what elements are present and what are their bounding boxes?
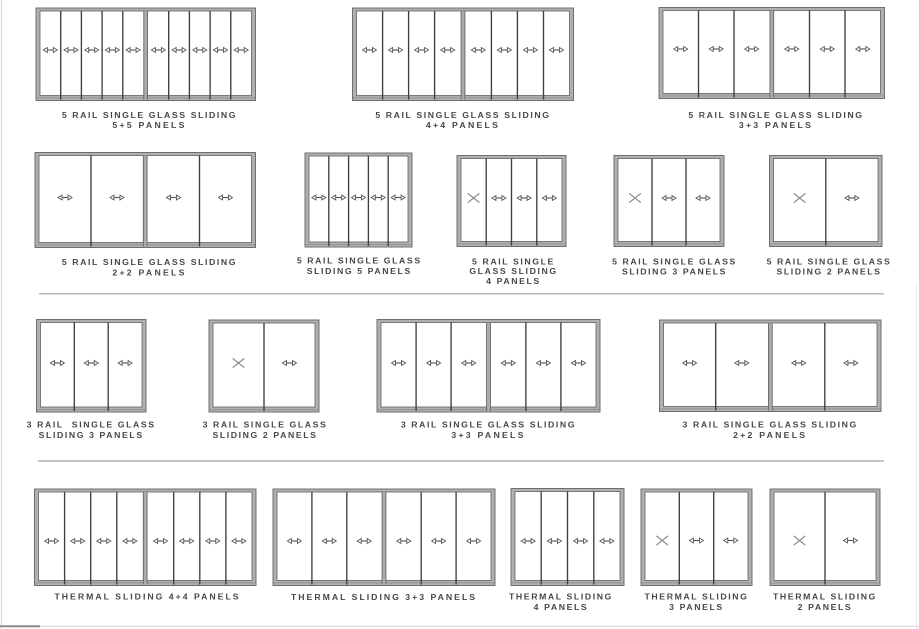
svg-text:5 RAIL SINGLE GLASS SLIDING: 5 RAIL SINGLE GLASS SLIDING	[62, 110, 237, 120]
svg-text:2 PANELS: 2 PANELS	[798, 602, 853, 612]
svg-text:GLASS SLIDING: GLASS SLIDING	[469, 266, 557, 276]
svg-text:SLIDING 2 PANELS: SLIDING 2 PANELS	[212, 430, 317, 440]
svg-text:3 RAIL SINGLE GLASS SLIDING: 3 RAIL SINGLE GLASS SLIDING	[401, 420, 576, 430]
svg-text:5 RAIL SINGLE GLASS: 5 RAIL SINGLE GLASS	[612, 256, 737, 266]
svg-text:3 RAIL SINGLE GLASS: 3 RAIL SINGLE GLASS	[27, 420, 156, 430]
svg-text:5 RAIL SINGLE: 5 RAIL SINGLE	[472, 256, 555, 266]
svg-text:5 RAIL SINGLE GLASS: 5 RAIL SINGLE GLASS	[297, 256, 422, 266]
svg-text:3 RAIL SINGLE GLASS: 3 RAIL SINGLE GLASS	[203, 420, 328, 430]
svg-text:SLIDING 2 PANELS: SLIDING 2 PANELS	[776, 267, 881, 277]
svg-text:5 RAIL SINGLE GLASS SLIDING: 5 RAIL SINGLE GLASS SLIDING	[62, 257, 237, 267]
svg-text:THERMAL SLIDING: THERMAL SLIDING	[509, 592, 613, 602]
svg-text:SLIDING 3 PANELS: SLIDING 3 PANELS	[39, 430, 144, 440]
svg-text:3 PANELS: 3 PANELS	[669, 602, 724, 612]
svg-text:4+4 PANELS: 4+4 PANELS	[426, 120, 500, 130]
svg-text:THERMAL SLIDING 3+3 PANELS: THERMAL SLIDING 3+3 PANELS	[291, 592, 477, 602]
svg-text:4 PANELS: 4 PANELS	[534, 602, 589, 612]
svg-text:THERMAL SLIDING 4+4 PANELS: THERMAL SLIDING 4+4 PANELS	[54, 592, 240, 602]
svg-text:2+2 PANELS: 2+2 PANELS	[112, 267, 186, 277]
svg-text:5 RAIL SINGLE GLASS SLIDING: 5 RAIL SINGLE GLASS SLIDING	[375, 110, 550, 120]
svg-text:SLIDING 5 PANELS: SLIDING 5 PANELS	[307, 266, 412, 276]
svg-text:5 RAIL SINGLE GLASS: 5 RAIL SINGLE GLASS	[767, 256, 892, 266]
svg-text:5+5 PANELS: 5+5 PANELS	[112, 120, 186, 130]
svg-text:THERMAL SLIDING: THERMAL SLIDING	[645, 592, 749, 602]
svg-text:2+2 PANELS: 2+2 PANELS	[733, 430, 807, 440]
svg-text:5 RAIL SINGLE GLASS SLIDING: 5 RAIL SINGLE GLASS SLIDING	[688, 110, 863, 120]
svg-text:THERMAL SLIDING: THERMAL SLIDING	[773, 592, 877, 602]
svg-text:4 PANELS: 4 PANELS	[486, 276, 541, 286]
svg-text:3+3 PANELS: 3+3 PANELS	[451, 430, 525, 440]
svg-text:3+3 PANELS: 3+3 PANELS	[739, 120, 813, 130]
svg-text:SLIDING 3 PANELS: SLIDING 3 PANELS	[622, 267, 727, 277]
svg-text:3 RAIL SINGLE GLASS SLIDING: 3 RAIL SINGLE GLASS SLIDING	[683, 420, 858, 430]
